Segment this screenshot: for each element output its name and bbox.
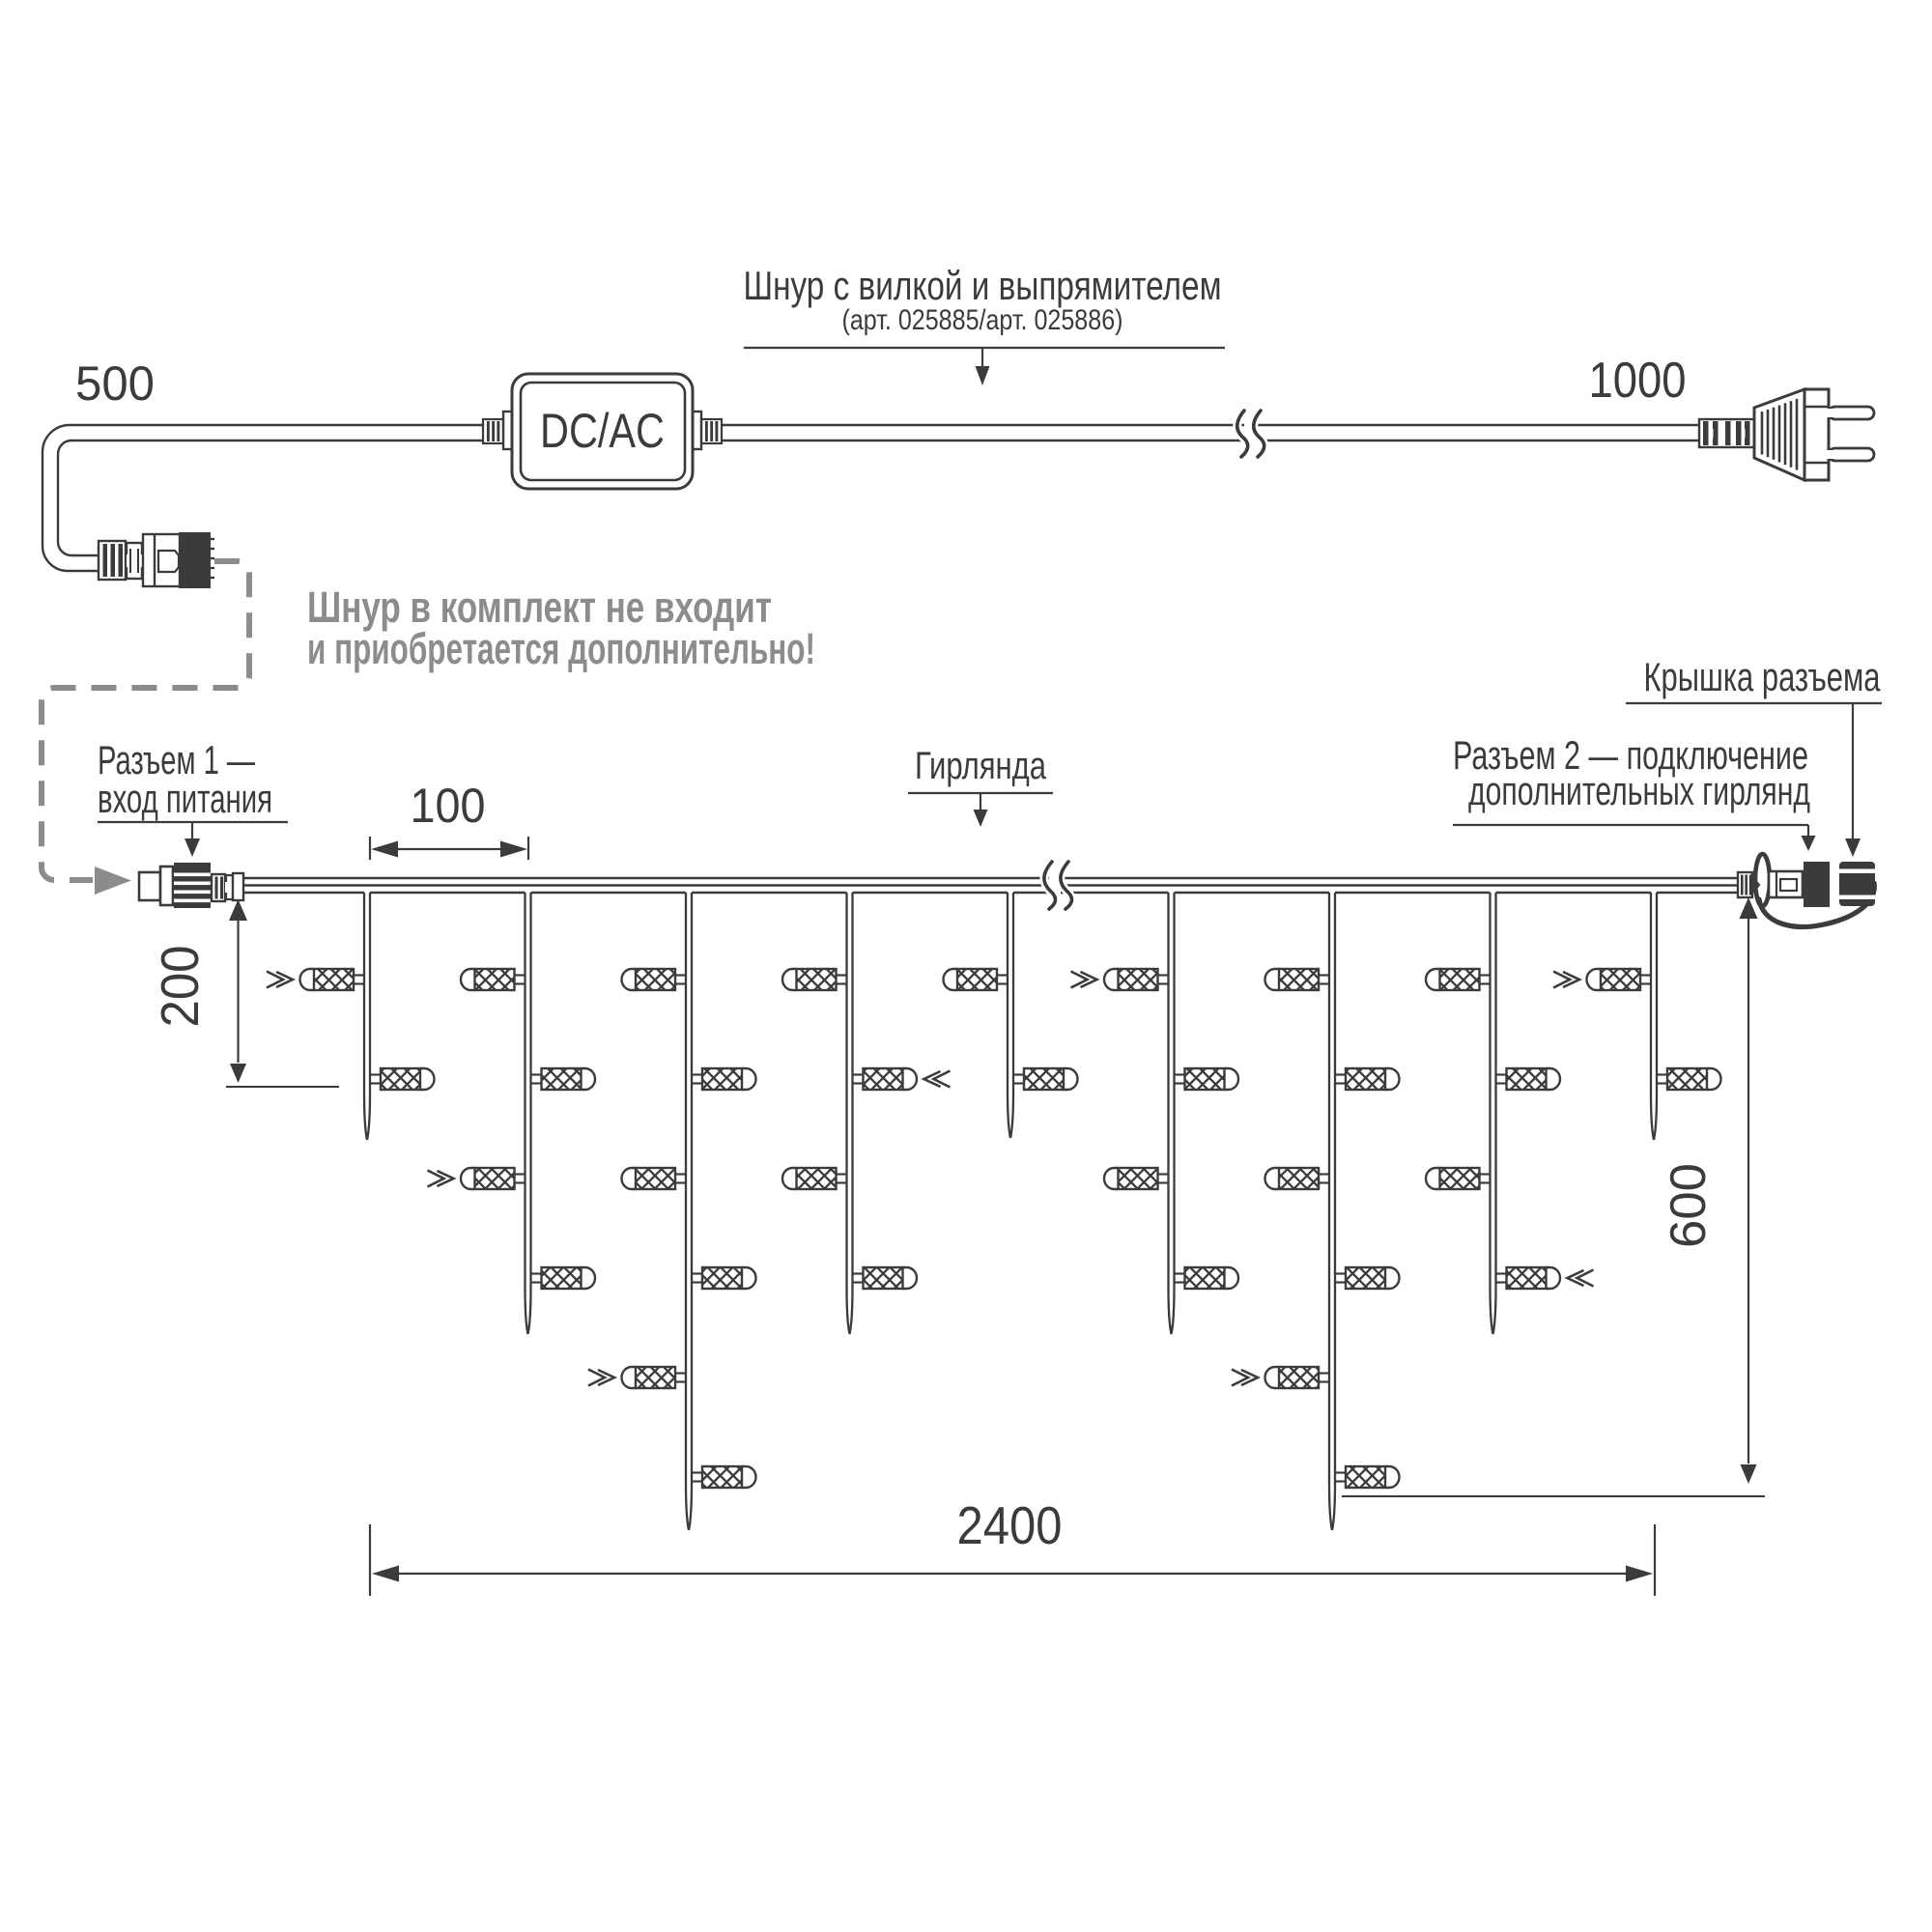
svg-text:дополнительных гирлянд: дополнительных гирлянд: [1468, 768, 1810, 813]
svg-text:100: 100: [411, 779, 486, 833]
svg-text:1000: 1000: [1589, 353, 1687, 409]
svg-text:Гирлянда: Гирлянда: [915, 745, 1047, 787]
svg-text:вход питания: вход питания: [98, 776, 272, 821]
svg-text:600: 600: [1661, 1163, 1717, 1248]
svg-text:DC/AC: DC/AC: [540, 404, 665, 458]
svg-text:200: 200: [150, 946, 210, 1028]
svg-text:Шнур с вилкой и выпрямителем: Шнур с вилкой и выпрямителем: [744, 263, 1222, 308]
svg-text:и приобретается дополнительно!: и приобретается дополнительно!: [307, 624, 815, 673]
svg-text:500: 500: [75, 356, 155, 411]
svg-text:(арт. 025885/арт. 025886): (арт. 025885/арт. 025886): [842, 304, 1123, 336]
svg-text:Крышка разъема: Крышка разъема: [1644, 654, 1881, 699]
svg-text:2400: 2400: [957, 1495, 1063, 1555]
